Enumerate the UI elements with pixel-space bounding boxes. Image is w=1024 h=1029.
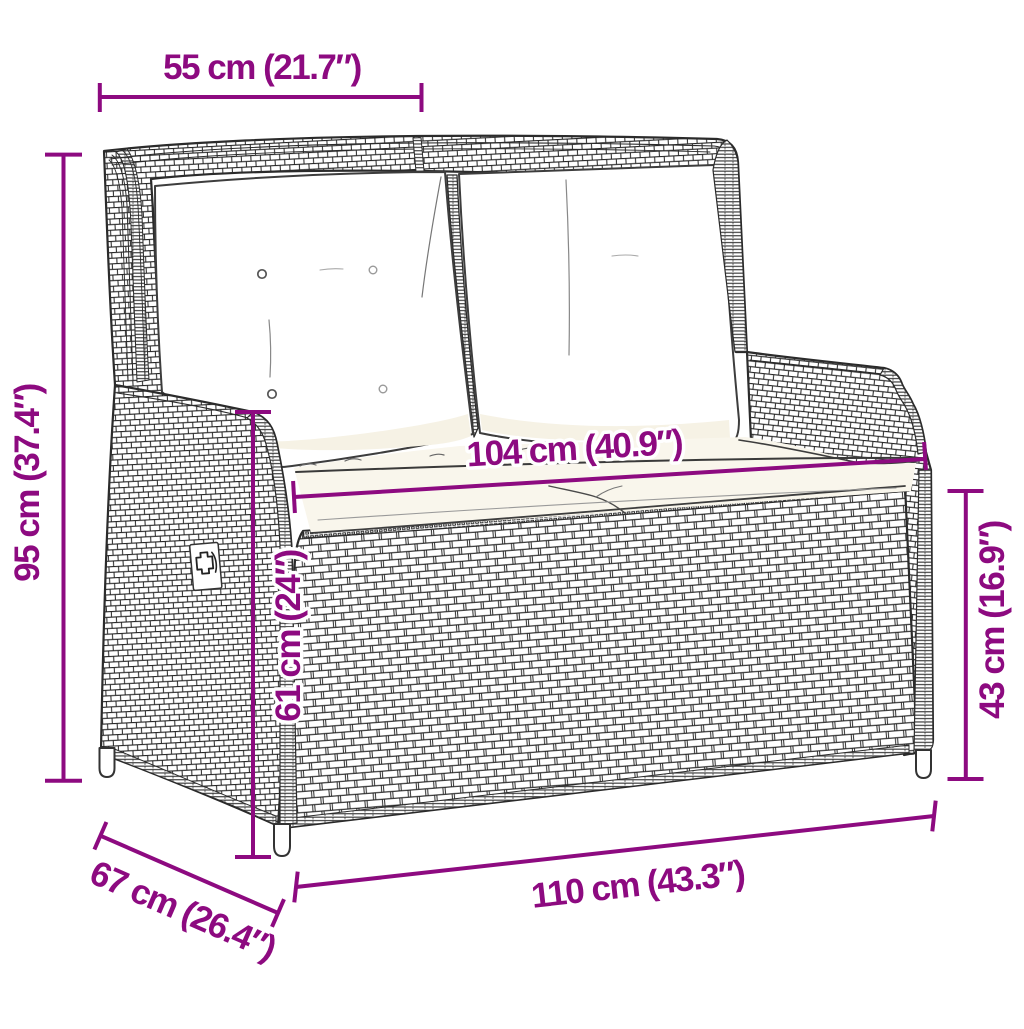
svg-text:55 cm (21.7″): 55 cm (21.7″) <box>163 48 361 87</box>
svg-text:61 cm (24″): 61 cm (24″) <box>269 550 308 721</box>
svg-text:43 cm (16.9″): 43 cm (16.9″) <box>973 521 1012 719</box>
svg-text:95 cm (37.4″): 95 cm (37.4″) <box>8 384 47 582</box>
